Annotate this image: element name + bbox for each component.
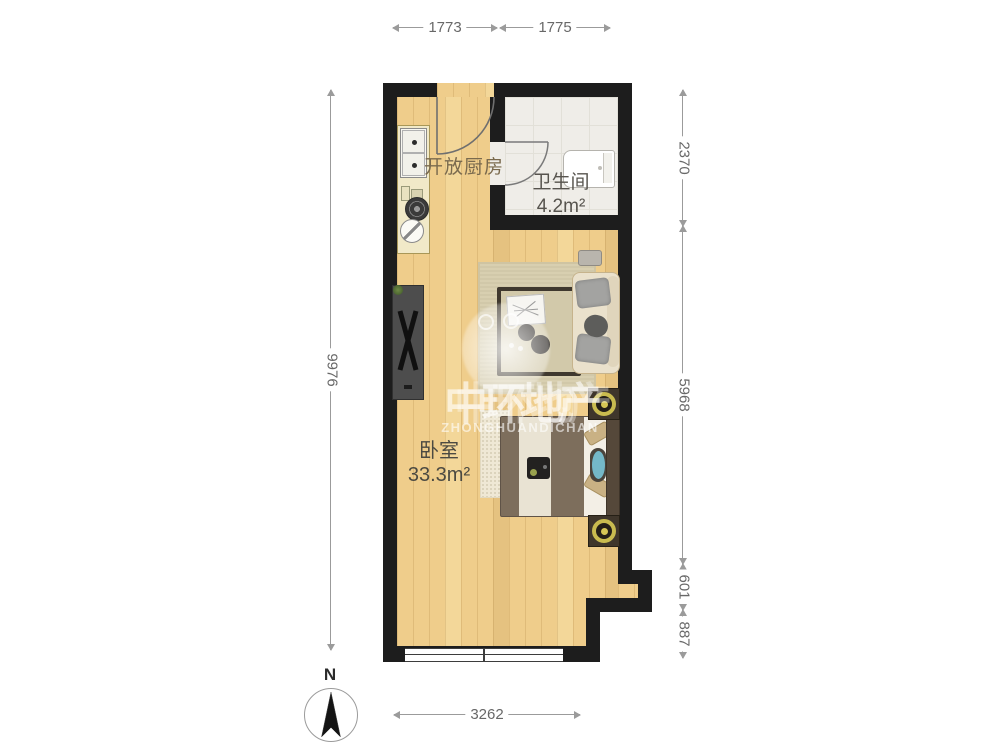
exterior-notch: [600, 612, 618, 646]
watermark-badge-icon: [478, 314, 494, 330]
sink-drain-icon: [412, 163, 417, 168]
tv-stand-x-icon: [393, 286, 423, 399]
sofa: [572, 272, 620, 374]
tv-panel: [392, 285, 424, 400]
dimension-label: 5968: [675, 373, 692, 416]
dimension-label: 887: [675, 616, 692, 651]
dimension-top-bathroom: 1775: [500, 27, 610, 28]
compass-needle-icon: [305, 689, 357, 741]
compass-north-label: N: [318, 665, 342, 685]
sink-basin-top: [402, 130, 425, 153]
washing-machine: [405, 197, 429, 221]
tablet-button-icon: [530, 469, 537, 476]
entry-door-threshold: [437, 83, 494, 97]
sofa-cushion: [574, 333, 611, 365]
sink-basin-bottom: [402, 153, 425, 176]
floor-step-patch: [618, 584, 638, 598]
dimension-right-bathroom: 2370: [682, 90, 683, 226]
dimension-label: 601: [675, 569, 692, 604]
wall-step2-vertical: [586, 598, 600, 650]
wall-right: [618, 83, 632, 584]
wall-bathroom-left-upper: [490, 97, 505, 142]
tablet-dot-icon: [543, 465, 547, 469]
dimension-label: 1775: [533, 20, 576, 37]
dimension-right-step1: 601: [682, 564, 683, 610]
plant-icon: [393, 285, 403, 295]
sofa-cushion: [574, 277, 611, 309]
wall-top-left: [383, 83, 437, 97]
watermark-badge-icon: [503, 313, 519, 329]
watermark-text-en: ZHONGHUANDICHAN: [425, 420, 615, 435]
bathroom-label: 卫生间 4.2m²: [505, 172, 617, 218]
sink-drain-icon: [412, 140, 417, 145]
dimension-top-kitchen: 1773: [393, 27, 497, 28]
dimension-label: 1773: [423, 20, 466, 37]
neck-roll-pillow: [592, 451, 605, 479]
dimension-label: 9976: [323, 348, 340, 391]
dimension-bottom: 3262: [394, 714, 580, 715]
dimension-label: 3262: [465, 707, 508, 724]
window-divider: [483, 649, 485, 661]
bathroom-name: 卫生间: [505, 172, 617, 194]
window: [405, 648, 563, 662]
panel-item: [404, 385, 412, 389]
tablet-on-bed: [527, 457, 550, 479]
side-table: [578, 250, 602, 266]
toilet-flush-icon: [598, 166, 602, 170]
dimension-right-step2: 887: [682, 610, 683, 658]
compass-icon: [304, 688, 358, 742]
lamp-bulb-icon: [601, 528, 608, 535]
nightstand: [588, 515, 620, 547]
basin-round: [400, 219, 424, 243]
bedroom-label: 卧室 33.3m²: [398, 440, 480, 487]
kitchen-label: 开放厨房: [424, 157, 504, 179]
dimension-label: 2370: [675, 136, 692, 179]
bedroom-area: 33.3m²: [398, 464, 480, 487]
kitchen-counter: [397, 125, 430, 254]
bedroom-name: 卧室: [398, 440, 480, 463]
floor-plan-canvas: 开放厨房 卫生间 4.2m² 卧室 33.3m² 中环地产 ZHONGHUAND…: [0, 0, 1000, 751]
kitchen-sink: [400, 128, 427, 178]
dimension-left-total: 9976: [330, 90, 331, 650]
bathroom-area: 4.2m²: [505, 196, 617, 218]
dimension-right-bedroom: 5968: [682, 226, 683, 564]
wall-top-right: [494, 83, 632, 97]
lamp-icon: [592, 519, 616, 543]
